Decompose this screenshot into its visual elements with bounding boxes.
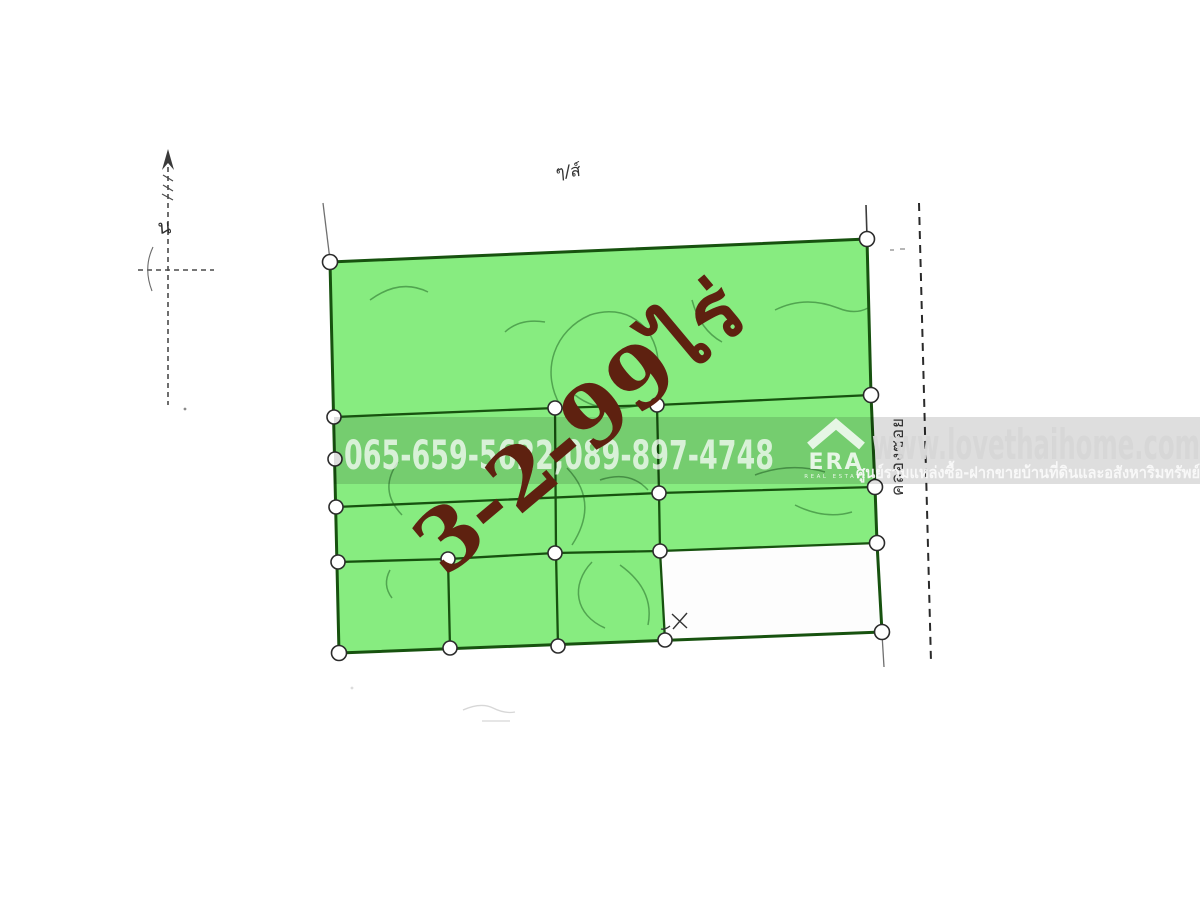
survey-marker [875, 625, 890, 640]
survey-marker [323, 255, 338, 270]
survey-marker [658, 633, 672, 647]
survey-map-canvas: น ๆ/ส์ [0, 0, 1200, 900]
land-plot-listing-image: น ๆ/ส์ [0, 0, 1200, 900]
white-parcel [660, 543, 882, 640]
sheet-note: ๆ/ส์ [555, 161, 583, 183]
survey-marker [653, 544, 667, 558]
survey-marker [332, 646, 347, 661]
tagline-watermark: ศูนย์รวมแหล่งซื้อ-ฝากขายบ้านที่ดินและอสั… [856, 460, 1200, 484]
survey-marker [329, 500, 343, 514]
survey-marker [551, 639, 565, 653]
survey-marker [331, 555, 345, 569]
survey-marker [860, 232, 875, 247]
survey-marker [652, 486, 666, 500]
survey-marker [870, 536, 885, 551]
pencil-dot [184, 408, 187, 411]
north-label: น [157, 214, 173, 239]
website-watermark: www.lovethaihome.com [872, 420, 1200, 469]
survey-marker [864, 388, 879, 403]
survey-marker [548, 546, 562, 560]
survey-marker [443, 641, 457, 655]
